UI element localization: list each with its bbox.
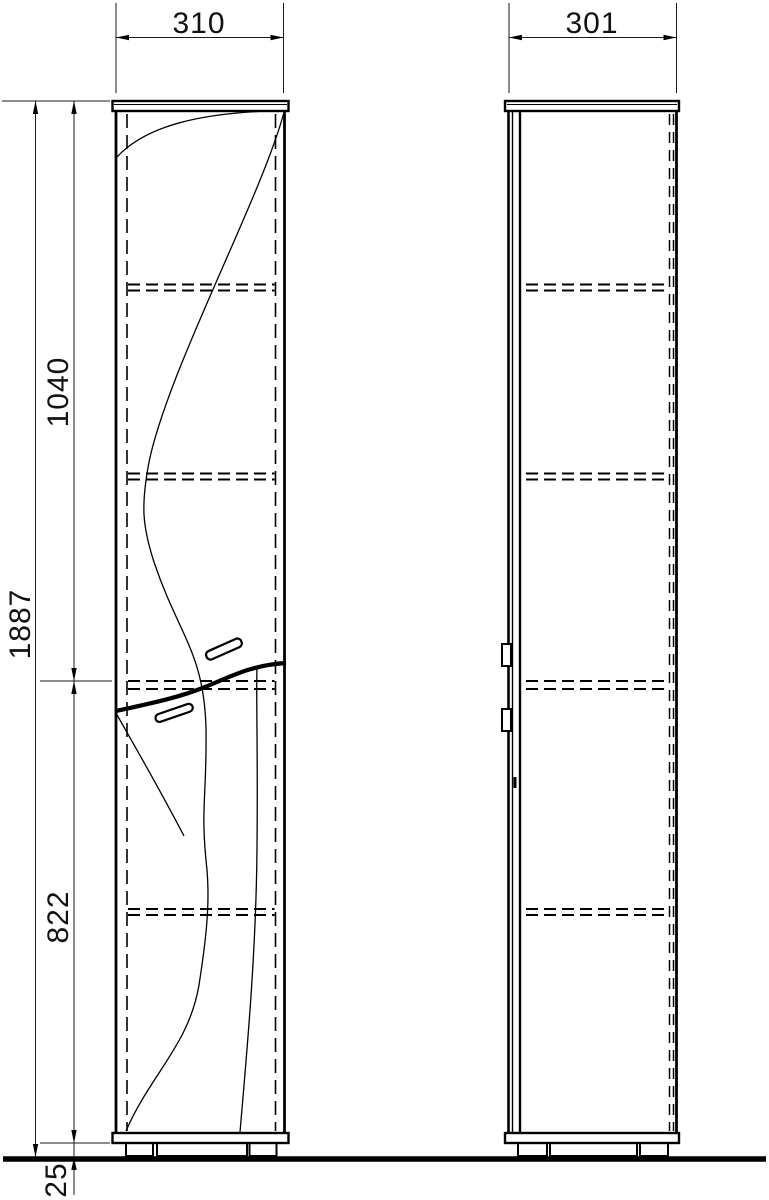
front-right-foot	[250, 1143, 277, 1156]
dimensions	[2, 3, 677, 1195]
dim-side-depth-label: 301	[565, 7, 618, 40]
dim-upper-section-label: 1040	[42, 357, 75, 428]
front-top-panel	[113, 101, 289, 111]
door-handle-lower	[154, 703, 193, 723]
side-plinth	[550, 1143, 637, 1156]
dim-base-height-label: 25	[40, 1162, 73, 1197]
front-shelf-2	[128, 474, 275, 480]
dim-lower-section-label: 822	[42, 890, 75, 943]
side-shelf-1	[526, 285, 668, 291]
front-shelf-1	[128, 285, 275, 291]
side-view	[502, 101, 679, 1156]
side-shelf-3	[526, 681, 668, 689]
side-back-foot	[640, 1143, 668, 1156]
front-view	[113, 101, 289, 1156]
side-top-panel	[505, 101, 679, 111]
front-left-foot	[126, 1143, 153, 1156]
side-shelf-4	[526, 909, 668, 915]
door-decor-curve-top	[116, 111, 284, 159]
side-front-foot	[518, 1143, 547, 1156]
side-bottom-panel	[505, 1133, 679, 1143]
front-bottom-panel	[113, 1133, 289, 1143]
side-shelf-2	[526, 474, 668, 480]
technical-drawing-canvas: 310 301 1887 1040 822 25	[0, 0, 769, 1200]
door-decor-curve-lower-right	[240, 667, 257, 1132]
side-handle-upper	[502, 644, 511, 666]
dim-total-height-label: 1887	[4, 589, 37, 660]
dimension-arrows	[33, 35, 677, 1170]
front-plinth	[157, 1143, 247, 1156]
front-shelf-4	[128, 909, 275, 915]
door-split-wave	[116, 663, 286, 711]
dim-front-width-label: 310	[172, 7, 225, 40]
cabinet-two-view-drawing: 310 301 1887 1040 822 25	[0, 0, 769, 1200]
dimension-labels: 310 301 1887 1040 822 25	[4, 7, 619, 1198]
side-handle-lower	[502, 709, 511, 731]
door-handle-upper	[205, 637, 243, 661]
door-decor-curve-long	[126, 114, 284, 1131]
